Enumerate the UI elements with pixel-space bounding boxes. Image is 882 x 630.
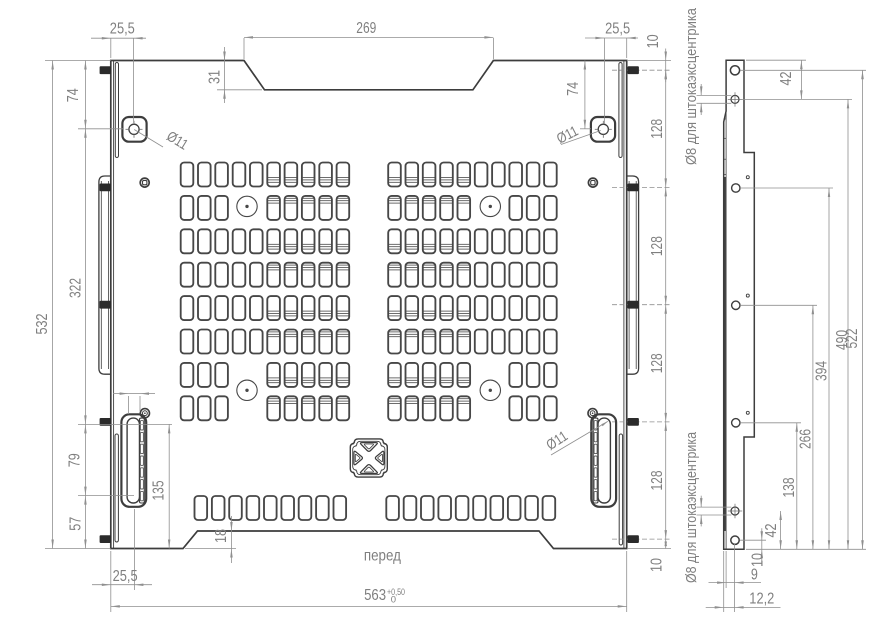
- svg-text:563: 563: [364, 587, 386, 604]
- svg-text:9: 9: [751, 567, 758, 584]
- svg-text:25,5: 25,5: [605, 20, 630, 37]
- svg-text:12,2: 12,2: [749, 590, 774, 607]
- svg-text:42: 42: [763, 524, 780, 538]
- svg-text:79: 79: [66, 453, 83, 467]
- svg-text:128: 128: [649, 471, 666, 491]
- svg-text:10: 10: [645, 34, 662, 48]
- svg-text:74: 74: [65, 88, 82, 102]
- svg-text:перед: перед: [364, 548, 402, 565]
- svg-text:266: 266: [797, 429, 814, 449]
- svg-text:57: 57: [68, 517, 85, 531]
- svg-text:42: 42: [778, 72, 795, 86]
- svg-text:25,5: 25,5: [113, 568, 138, 585]
- svg-text:135: 135: [150, 481, 167, 501]
- svg-text:Ø8 для штокаэксцентрика: Ø8 для штокаэксцентрика: [684, 431, 700, 583]
- svg-text:128: 128: [649, 236, 666, 256]
- svg-text:0: 0: [391, 594, 396, 605]
- svg-text:532: 532: [34, 314, 51, 335]
- svg-text:18: 18: [213, 529, 230, 543]
- svg-text:322: 322: [67, 278, 84, 298]
- svg-text:10: 10: [750, 553, 767, 567]
- svg-text:Ø8 для штокаэксцентрика: Ø8 для штокаэксцентрика: [684, 7, 700, 165]
- svg-text:74: 74: [565, 81, 582, 95]
- svg-text:269: 269: [356, 20, 376, 37]
- svg-text:138: 138: [781, 478, 798, 498]
- svg-text:10: 10: [649, 558, 666, 572]
- svg-text:128: 128: [649, 353, 666, 373]
- svg-text:128: 128: [649, 119, 666, 139]
- svg-text:25,5: 25,5: [110, 20, 135, 37]
- svg-text:490: 490: [834, 330, 851, 350]
- svg-text:31: 31: [207, 70, 224, 84]
- svg-text:394: 394: [813, 361, 830, 381]
